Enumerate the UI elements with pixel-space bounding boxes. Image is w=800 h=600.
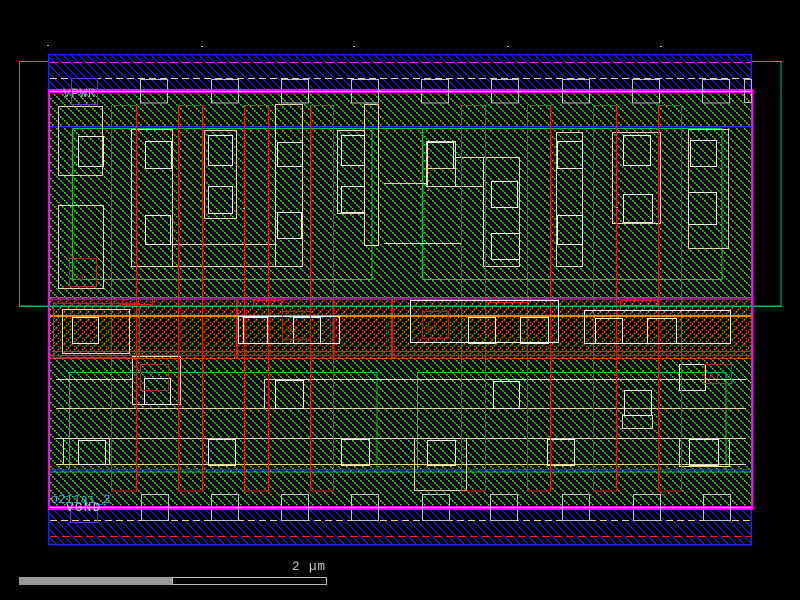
svg-text:o211ai_2: o211ai_2 xyxy=(51,493,111,507)
svg-text:C1: C1 xyxy=(74,273,85,283)
svg-text:VPWR: VPWR xyxy=(63,87,96,101)
svg-text:A1: A1 xyxy=(709,372,720,382)
svg-text:B1: B1 xyxy=(287,325,298,335)
svg-text:v: v xyxy=(149,368,155,378)
svg-text:B1: B1 xyxy=(427,325,438,335)
svg-text:2 µm: 2 µm xyxy=(292,560,326,574)
